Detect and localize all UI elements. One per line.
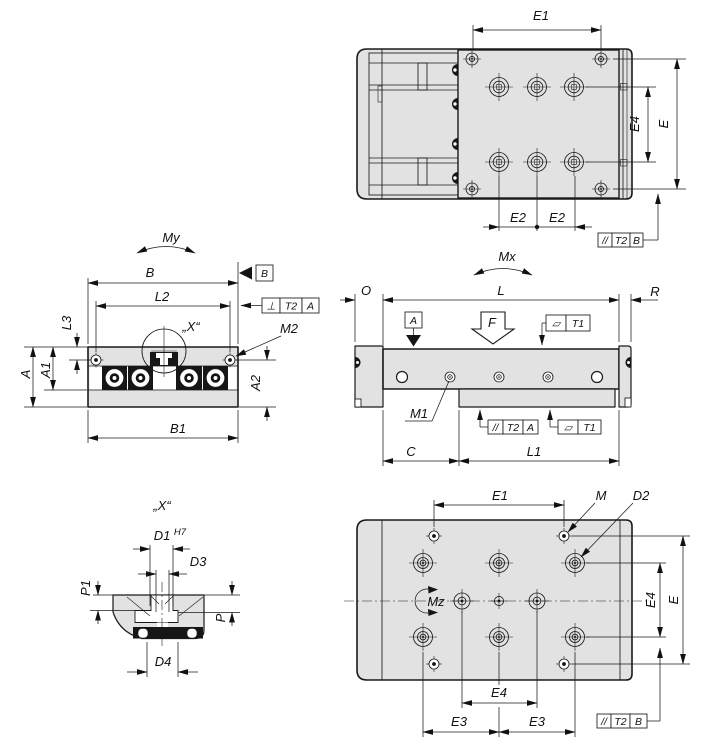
tolerance-t1: T1	[583, 422, 595, 434]
datum-a-label: A	[409, 315, 417, 327]
dim-label-p: P	[213, 613, 228, 622]
datum-flag-b: B	[239, 265, 273, 281]
label-m2: M2	[280, 321, 299, 336]
parallelism-symbol: //	[600, 716, 608, 728]
dim-label-e3: E3	[451, 714, 468, 729]
front-view-tolerance-frame-perp-t2-a: ⊥ T2 A	[241, 298, 319, 313]
tolerance-t1: T1	[572, 318, 584, 330]
dim-label-e4: E4	[491, 685, 507, 700]
detail-x-reference: „X“	[181, 319, 200, 334]
dim-label-e: E	[666, 595, 681, 604]
datum-ref-b: B	[633, 235, 640, 247]
right-cap-notch	[625, 398, 631, 407]
side-view-left-cap	[355, 346, 383, 407]
dim-label-l3: L3	[59, 315, 74, 330]
detail-slot-bottom	[157, 623, 168, 628]
front-view-dim-l3: L3	[24, 315, 91, 374]
top-view: E1 E4 E E2 E2 // T2 B	[357, 8, 686, 247]
perpendicularity-symbol: ⊥	[266, 301, 275, 313]
bottom-view: Mz E1 M D2 E4 E E4 E3 E3 //	[344, 488, 690, 737]
roller-wheel	[105, 369, 124, 388]
side-view: Mx O L R A F ▱ T1 M1 // T2 A	[340, 249, 660, 466]
side-view-tolerance-frame-parallel-t2-a: // T2 A	[480, 410, 538, 434]
tolerance-t2: T2	[507, 422, 519, 434]
datum-ref-b: B	[635, 716, 642, 728]
moment-mx: Mx	[474, 249, 532, 275]
front-view-dim-a1: A1	[38, 347, 87, 390]
side-view-tolerance-frame-flat-t1-top: ▱ T1	[542, 315, 590, 345]
label-m: M	[596, 488, 607, 503]
label-d2: D2	[633, 488, 650, 503]
top-view-carriage-plate	[458, 50, 619, 198]
dim-label-b: B	[146, 265, 155, 280]
dim-label-a1: A1	[38, 362, 53, 379]
technical-drawing-page: E1 E4 E E2 E2 // T2 B	[0, 0, 702, 750]
side-view-tolerance-frame-flat-t1-bottom: ▱ T1	[550, 410, 601, 434]
front-view-dim-a2: A2	[236, 346, 276, 421]
fit-label-h7: H7	[174, 527, 187, 538]
dim-label-l2: L2	[155, 289, 170, 304]
front-view-dim-b1: B1	[88, 410, 238, 443]
parallelism-symbol: //	[492, 422, 500, 434]
dim-label-e1: E1	[492, 488, 508, 503]
roller-wheel	[180, 369, 199, 388]
roller-wheel	[206, 369, 225, 388]
dim-label-e4: E4	[643, 592, 658, 608]
dim-label-e3: E3	[529, 714, 546, 729]
detail-dim-d1: D1 H7	[133, 527, 190, 606]
dim-label-c: C	[406, 444, 416, 459]
front-view-label-m2: M2	[236, 321, 299, 356]
detail-view-x: „X“ D1 H7 D3 P1 P D4	[78, 498, 240, 677]
force-label-f: F	[488, 315, 497, 330]
top-view-dim-e1: E1	[473, 8, 601, 50]
label-m1: M1	[410, 406, 428, 421]
dim-label-b1: B1	[170, 421, 186, 436]
moment-my: My	[137, 230, 195, 253]
front-view-dim-l2: L2	[96, 289, 230, 352]
dim-label-a: A	[18, 370, 33, 380]
dim-label-d4: D4	[155, 654, 172, 669]
tolerance-t2: T2	[285, 301, 297, 313]
parallelism-symbol: //	[601, 235, 609, 247]
front-view: B B L2 ⊥ T2 A „X“ M2 My L3 A1	[18, 230, 319, 443]
datum-ref-a: A	[306, 301, 314, 313]
dim-label-o: O	[361, 283, 371, 298]
side-view-lower-rail	[459, 389, 615, 407]
dim-label-e2: E2	[510, 210, 527, 225]
moment-label-mx: Mx	[498, 249, 516, 264]
top-view-tolerance-frame-parallel-t2-b: // T2 B	[598, 194, 658, 247]
detail-dim-d4: D4	[127, 642, 198, 677]
dim-label-e1: E1	[533, 8, 549, 23]
dim-label-r: R	[650, 284, 659, 299]
dim-label-l: L	[497, 283, 504, 298]
force-f-arrow: F	[472, 312, 514, 344]
moment-label-mz: Mz	[427, 594, 445, 609]
left-cap-notch	[355, 399, 361, 407]
dim-label-d3: D3	[190, 554, 207, 569]
dim-label-e4: E4	[627, 116, 642, 132]
dim-label-p1: P1	[78, 580, 93, 596]
datum-b-label: B	[261, 268, 268, 280]
datum-ref-a: A	[526, 422, 534, 434]
drawing-canvas: E1 E4 E E2 E2 // T2 B	[0, 0, 702, 750]
tolerance-t2: T2	[615, 235, 627, 247]
dim-label-e2: E2	[549, 210, 566, 225]
dim-label-d1: D1	[154, 528, 171, 543]
tolerance-t2: T2	[614, 716, 626, 728]
dim-label-l1: L1	[527, 444, 541, 459]
detail-x-title: „X“	[152, 498, 171, 513]
roller-wheel	[131, 369, 150, 388]
dim-label-a2: A2	[248, 374, 263, 392]
datum-flag-a: A	[405, 312, 422, 347]
side-view-carriage-bar	[383, 349, 619, 389]
moment-label-my: My	[162, 230, 181, 245]
dim-label-e: E	[656, 119, 671, 128]
